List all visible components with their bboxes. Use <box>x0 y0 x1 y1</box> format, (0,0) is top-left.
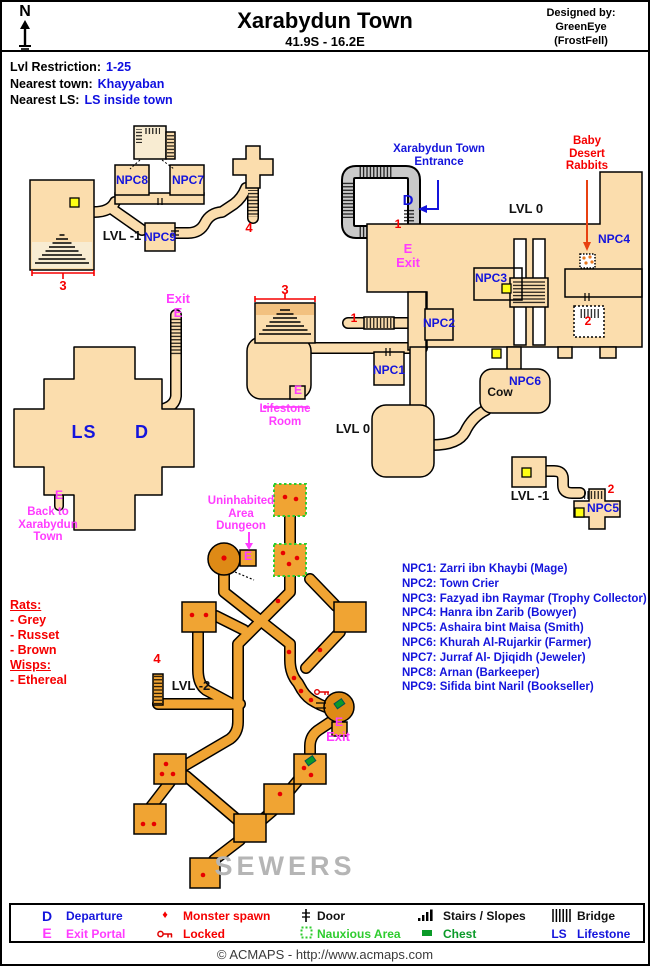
title-bar: N Xarabydun Town 41.9S - 16.2E Designed … <box>2 2 648 52</box>
monster-key-entry: - Russet <box>10 628 67 643</box>
legend-label: Nauxious Area <box>317 927 401 941</box>
monster-key-entry: - Grey <box>10 613 67 628</box>
npc-entry: NPC1: Zarri ibn Khaybi (Mage) <box>402 562 647 577</box>
corridor-vertical <box>410 347 426 409</box>
npc-entry: NPC7: Jurraf Al- Djiqidh (Jeweler) <box>402 651 647 666</box>
exit-portal-marker: E <box>335 716 343 729</box>
departure-marker: D <box>403 193 414 210</box>
info-row: Lvl Restriction:1-25 <box>10 59 173 76</box>
exit-portal-marker: E <box>174 306 183 320</box>
exit-portal-marker: E <box>294 384 302 397</box>
bridge-icon <box>551 909 571 922</box>
sewers-title: SEWERS <box>214 852 355 882</box>
stairs-icon <box>144 128 160 134</box>
npc-entry: NPC3: Fazyad ibn Raymar (Trophy Collecto… <box>402 592 647 607</box>
label-npc5: NPC5 <box>587 502 619 515</box>
rabbits-caption: Baby Desert Rabbits <box>558 135 616 173</box>
yellow-marker <box>502 284 511 293</box>
stairs-number: 2 <box>585 315 592 328</box>
label-npc3: NPC3 <box>475 272 507 285</box>
npc-entry: NPC2: Town Crier <box>402 577 647 592</box>
cow-label: Cow <box>487 386 512 399</box>
monster-key-heading: Wisps: <box>10 658 67 673</box>
info-row: Nearest LS:LS inside town <box>10 92 173 109</box>
door-icon <box>299 908 313 923</box>
legend-label: Departure <box>66 909 123 923</box>
stairs-number: 3 <box>59 279 66 293</box>
lifestone-departure-room <box>14 318 194 530</box>
sewer-room <box>134 804 166 834</box>
info-label: Lvl Restriction: <box>10 60 101 74</box>
exit-label-sewer: Exit <box>326 730 350 744</box>
info-label: Nearest town: <box>10 77 93 91</box>
npc-entry: NPC8: Arnan (Barkeeper) <box>402 666 647 681</box>
level-label: LVL -1 <box>103 229 142 243</box>
legend-label: Lifestone <box>577 927 630 941</box>
legend-label: Door <box>317 909 345 923</box>
monster-key-heading: Rats: <box>10 598 67 613</box>
stairs-icon <box>343 182 353 218</box>
legend-label: Bridge <box>577 909 615 923</box>
stairs-icon <box>248 190 258 217</box>
entrance-caption: Xarabydun Town Entrance <box>384 143 494 168</box>
monster-key-entry: - Ethereal <box>10 673 67 688</box>
yellow-marker <box>575 508 584 517</box>
label-npc9: NPC9 <box>144 231 176 244</box>
back-to-town-caption: Back to Xarabydun Town <box>7 506 89 544</box>
departure-marker: D <box>42 908 52 924</box>
exit-portal-marker: E <box>244 550 252 563</box>
info-value: LS inside town <box>84 93 172 107</box>
level-label: LVL -2 <box>172 679 211 693</box>
npc-directory: NPC1: Zarri ibn Khaybi (Mage) NPC2: Town… <box>402 562 647 695</box>
legend-box: D Departure ♦ Monster spawn Door Stairs … <box>9 903 645 943</box>
legend-label: Exit Portal <box>66 927 125 941</box>
stairs-number: 4 <box>245 221 252 235</box>
yellow-marker <box>70 198 79 207</box>
map-page: N Xarabydun Town 41.9S - 16.2E Designed … <box>0 0 650 966</box>
yellow-marker <box>522 468 531 477</box>
nauxious-area <box>274 544 306 576</box>
stairs-icon <box>417 909 435 922</box>
exit-label-entrance: Exit <box>396 256 420 270</box>
sewer-room <box>234 814 266 842</box>
npc-entry: NPC9: Sifida bint Naril (Bookseller) <box>402 680 647 695</box>
label-npc6: NPC6 <box>509 375 541 388</box>
entrance-pointer-arrow <box>426 180 438 209</box>
sewer-room <box>264 784 294 814</box>
designed-by-label: Designed by: <box>546 7 615 19</box>
chest-icon <box>421 929 433 937</box>
designer-server: (FrostFell) <box>554 35 608 47</box>
label-npc7: NPC7 <box>172 174 204 187</box>
room-plus-top <box>233 146 273 188</box>
stairs-icon <box>171 318 182 356</box>
npc-entry: NPC4: Hanra ibn Zarib (Bowyer) <box>402 606 647 621</box>
corridor-stub <box>507 347 521 371</box>
nauxious-area-icon <box>300 926 313 939</box>
dungeon-caption: Uninhabited Area Dungeon <box>203 495 279 533</box>
copyright-footer: © ACMAPS - http://www.acmaps.com <box>2 947 648 962</box>
legend-label: Monster spawn <box>183 909 270 923</box>
level-label: LVL 0 <box>509 202 543 216</box>
label-npc2: NPC2 <box>423 317 455 330</box>
stairs-icon <box>358 167 392 177</box>
stairs-number: 4 <box>153 652 160 666</box>
monster-spawn-icon: ♦ <box>162 909 168 921</box>
lvl0-lower-room <box>372 405 434 477</box>
info-label: Nearest LS: <box>10 93 79 107</box>
departure-marker: D <box>135 423 149 443</box>
stairs-number: 1 <box>351 312 358 325</box>
lifestone-room-building <box>247 294 315 409</box>
info-value: Khayyaban <box>98 77 165 91</box>
stairs-number: 2 <box>608 483 615 496</box>
lifestone-marker: LS <box>71 423 96 443</box>
level-label: LVL 0 <box>336 422 370 436</box>
stairs-number: 3 <box>281 283 288 297</box>
legend-label: Chest <box>443 927 476 941</box>
sewer-room <box>182 602 216 632</box>
label-npc8: NPC8 <box>116 174 148 187</box>
label-npc4: NPC4 <box>598 233 630 246</box>
legend-label: Stairs / Slopes <box>443 909 526 923</box>
map-info-block: Lvl Restriction:1-25 Nearest town:Khayya… <box>10 59 173 109</box>
locked-icon <box>157 929 174 939</box>
sewer-room <box>154 754 186 784</box>
level-label: LVL -1 <box>511 489 550 503</box>
stairs-number: 1 <box>395 218 402 231</box>
stairs-icon <box>167 134 174 157</box>
stairs-icon <box>584 491 604 499</box>
label-npc1: NPC1 <box>373 364 405 377</box>
stairs-icon <box>136 129 142 143</box>
sewer-rooms <box>134 484 366 888</box>
npc-entry: NPC5: Ashaira bint Maisa (Smith) <box>402 621 647 636</box>
sewer-room <box>334 602 366 632</box>
monster-key: Rats: - Grey - Russet - Brown Wisps: - E… <box>10 598 67 688</box>
npc-entry: NPC6: Khurah Al-Rujarkir (Farmer) <box>402 636 647 651</box>
town-map-canvas <box>2 2 650 966</box>
yellow-marker <box>492 349 501 358</box>
exit-portal-marker: E <box>55 489 63 502</box>
locked-icon <box>315 690 329 695</box>
info-value: 1-25 <box>106 60 131 74</box>
monster-key-entry: - Brown <box>10 643 67 658</box>
exit-portal-marker: E <box>42 925 51 941</box>
info-row: Nearest town:Khayyaban <box>10 76 173 93</box>
legend-label: Locked <box>183 927 225 941</box>
lifestone-room-caption: Lifestone Room <box>248 403 322 428</box>
designer-credit: Designed by: GreenEye (FrostFell) <box>522 7 640 48</box>
designer-name: GreenEye <box>555 21 606 33</box>
lifestone-marker: LS <box>551 927 566 941</box>
